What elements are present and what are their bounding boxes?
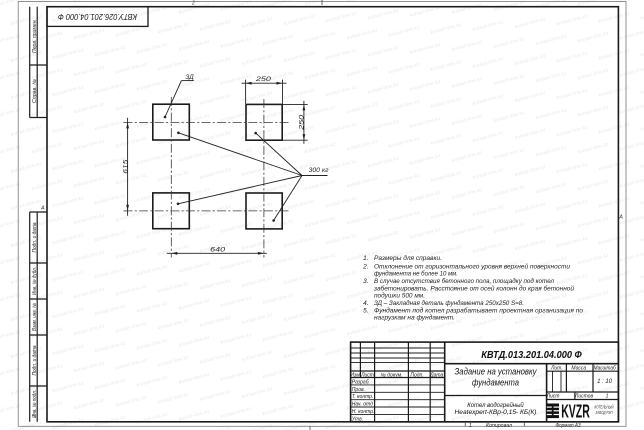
svg-text:kotlad-line.kz: kotlad-line.kz [577, 289, 610, 303]
svg-text:kotlad-line.kz: kotlad-line.kz [157, 391, 190, 405]
svg-text:kotlad-line.kz: kotlad-line.kz [535, 144, 568, 158]
svg-text:kotlad-line.kz: kotlad-line.kz [10, 124, 43, 138]
svg-text:kotlad-line.kz: kotlad-line.kz [577, 215, 610, 229]
svg-text:kotlad-line.kz: kotlad-line.kz [430, 170, 463, 184]
svg-text:kotlad-line.kz: kotlad-line.kz [0, 312, 1, 326]
svg-text:Подп. и дата: Подп. и дата [32, 345, 38, 375]
svg-text:kotlad-line.kz: kotlad-line.kz [304, 400, 337, 414]
svg-text:kotlad-line.kz: kotlad-line.kz [409, 79, 442, 93]
svg-text:kotlad-line.kz: kotlad-line.kz [346, 323, 379, 337]
svg-text:Изм: Изм [350, 372, 360, 378]
svg-text:kotlad-line.kz: kotlad-line.kz [346, 0, 379, 5]
svg-text:kotlad-line.kz: kotlad-line.kz [640, 267, 644, 281]
svg-text:kotlad-line.kz: kotlad-line.kz [640, 45, 644, 59]
svg-text:kotlad-line.kz: kotlad-line.kz [220, 295, 253, 309]
svg-text:kotlad-line.kz: kotlad-line.kz [94, 192, 127, 206]
svg-text:kotlad-line.kz: kotlad-line.kz [199, 389, 232, 403]
svg-text:5.: 5. [363, 307, 369, 314]
svg-text:kotlad-line.kz: kotlad-line.kz [640, 341, 644, 355]
svg-text:фундамента не более 10 мм.: фундамента не более 10 мм. [374, 270, 458, 278]
svg-text:kotlad-line.kz: kotlad-line.kz [178, 39, 211, 53]
svg-text:kotlad-line.kz: kotlad-line.kz [409, 153, 442, 167]
svg-text:kotlad-line.kz: kotlad-line.kz [472, 167, 505, 181]
svg-text:kotlad-line.kz: kotlad-line.kz [556, 235, 589, 249]
svg-text:kotlad-line.kz: kotlad-line.kz [514, 238, 547, 252]
svg-text:kotlad-line.kz: kotlad-line.kz [94, 81, 127, 95]
svg-text:kotlad-line.kz: kotlad-line.kz [52, 232, 85, 246]
svg-text:kotlad-line.kz: kotlad-line.kz [10, 420, 43, 430]
svg-text:kotlad-line.kz: kotlad-line.kz [0, 329, 22, 343]
svg-text:kotlad-line.kz: kotlad-line.kz [157, 354, 190, 368]
svg-text:kotlad-line.kz: kotlad-line.kz [472, 204, 505, 218]
svg-text:kotlad-line.kz: kotlad-line.kz [367, 44, 400, 58]
svg-text:kotlad-line.kz: kotlad-line.kz [52, 343, 85, 357]
svg-text:kotlad-line.kz: kotlad-line.kz [262, 403, 295, 417]
svg-text:kotlad-line.kz: kotlad-line.kz [73, 175, 106, 189]
svg-text:A: A [40, 206, 45, 212]
svg-text:kotlad-line.kz: kotlad-line.kz [241, 164, 274, 178]
svg-text:kotlad-line.kz: kotlad-line.kz [325, 306, 358, 320]
svg-text:kotlad-line.kz: kotlad-line.kz [94, 377, 127, 391]
svg-text:kotlad-line.kz: kotlad-line.kz [157, 21, 190, 35]
svg-text:kotlad-line.kz: kotlad-line.kz [325, 195, 358, 209]
svg-text:kotlad-line.kz: kotlad-line.kz [409, 116, 442, 130]
svg-text:kotlad-line.kz: kotlad-line.kz [241, 312, 274, 326]
svg-text:kotlad-line.kz: kotlad-line.kz [388, 173, 421, 187]
svg-text:kotlad-line.kz: kotlad-line.kz [283, 235, 316, 249]
svg-text:kotlad-line.kz: kotlad-line.kz [136, 41, 169, 55]
svg-text:1 : 10: 1 : 10 [597, 379, 613, 385]
svg-text:КОТЕЛЬНЫЙ: КОТЕЛЬНЫЙ [595, 405, 615, 410]
svg-text:kotlad-line.kz: kotlad-line.kz [283, 346, 316, 360]
svg-text:kotlad-line.kz: kotlad-line.kz [178, 76, 211, 90]
svg-text:kotlad-line.kz: kotlad-line.kz [451, 113, 484, 127]
svg-text:КВТУ.026.201.04.000 Ф: КВТУ.026.201.04.000 Ф [57, 12, 137, 21]
svg-text:kotlad-line.kz: kotlad-line.kz [304, 252, 337, 266]
svg-text:Масса: Масса [571, 365, 586, 371]
svg-text:kotlad-line.kz: kotlad-line.kz [0, 181, 22, 195]
svg-text:kotlad-line.kz: kotlad-line.kz [346, 138, 379, 152]
svg-text:kotlad-line.kz: kotlad-line.kz [220, 369, 253, 383]
svg-text:kotlad-line.kz: kotlad-line.kz [0, 16, 1, 30]
svg-text:kotlad-line.kz: kotlad-line.kz [325, 232, 358, 246]
svg-text:kotlad-line.kz: kotlad-line.kz [115, 172, 148, 186]
svg-text:kotlad-line.kz: kotlad-line.kz [304, 363, 337, 377]
svg-text:ЗД – Закладная деталь фундамен: ЗД – Закладная деталь фундамента 250х250… [374, 299, 524, 307]
svg-text:kotlad-line.kz: kotlad-line.kz [514, 16, 547, 30]
svg-text:kotlad-line.kz: kotlad-line.kz [556, 272, 589, 286]
svg-text:kotlad-line.kz: kotlad-line.kz [52, 47, 85, 61]
svg-text:kotlad-line.kz: kotlad-line.kz [304, 178, 337, 192]
svg-text:kotlad-line.kz: kotlad-line.kz [388, 136, 421, 150]
svg-text:kotlad-line.kz: kotlad-line.kz [0, 238, 1, 252]
svg-text:kotlad-line.kz: kotlad-line.kz [367, 118, 400, 132]
svg-text:1.: 1. [363, 255, 369, 262]
svg-text:kotlad-line.kz: kotlad-line.kz [472, 315, 505, 329]
svg-text:Взам. инв. №: Взам. инв. № [32, 302, 38, 331]
svg-text:kotlad-line.kz: kotlad-line.kz [241, 275, 274, 289]
svg-text:kotlad-line.kz: kotlad-line.kz [556, 161, 589, 175]
svg-text:kotlad-line.kz: kotlad-line.kz [73, 286, 106, 300]
svg-text:kotlad-line.kz: kotlad-line.kz [346, 27, 379, 41]
svg-text:250: 250 [255, 76, 272, 83]
svg-text:kotlad-line.kz: kotlad-line.kz [52, 306, 85, 320]
svg-text:kotlad-line.kz: kotlad-line.kz [115, 283, 148, 297]
svg-text:kotlad-line.kz: kotlad-line.kz [136, 300, 169, 314]
svg-text:kotlad-line.kz: kotlad-line.kz [52, 84, 85, 98]
svg-text:kotlad-line.kz: kotlad-line.kz [325, 10, 358, 24]
svg-text:kotlad-line.kz: kotlad-line.kz [325, 158, 358, 172]
svg-text:kotlad-line.kz: kotlad-line.kz [367, 7, 400, 21]
svg-text:kotlad-line.kz: kotlad-line.kz [325, 343, 358, 357]
svg-text:kotlad-line.kz: kotlad-line.kz [346, 64, 379, 78]
svg-text:kotlad-line.kz: kotlad-line.kz [0, 144, 22, 158]
svg-text:kotlad-line.kz: kotlad-line.kz [0, 70, 22, 84]
svg-text:kotlad-line.kz: kotlad-line.kz [220, 36, 253, 50]
svg-text:kotlad-line.kz: kotlad-line.kz [535, 70, 568, 84]
svg-text:kotlad-line.kz: kotlad-line.kz [304, 30, 337, 44]
svg-text:kotlad-line.kz: kotlad-line.kz [283, 50, 316, 64]
svg-text:подушки 500 мм.: подушки 500 мм. [374, 292, 425, 300]
svg-text:kotlad-line.kz: kotlad-line.kz [94, 266, 127, 280]
svg-text:kotlad-line.kz: kotlad-line.kz [178, 298, 211, 312]
svg-text:kotlad-line.kz: kotlad-line.kz [94, 44, 127, 58]
svg-text:kotlad-line.kz: kotlad-line.kz [199, 315, 232, 329]
svg-text:kotlad-line.kz: kotlad-line.kz [136, 374, 169, 388]
svg-text:kotlad-line.kz: kotlad-line.kz [115, 357, 148, 371]
svg-text:kotlad-line.kz: kotlad-line.kz [451, 187, 484, 201]
svg-text:kotlad-line.kz: kotlad-line.kz [10, 272, 43, 286]
svg-text:kotlad-line.kz: kotlad-line.kz [10, 198, 43, 212]
svg-text:kotlad-line.kz: kotlad-line.kz [0, 275, 1, 289]
svg-text:Фундамент под котел разрабатыв: Фундамент под котел разрабатывает проект… [374, 306, 583, 314]
svg-text:kotlad-line.kz: kotlad-line.kz [388, 321, 421, 335]
svg-text:kotlad-line.kz: kotlad-line.kz [388, 25, 421, 39]
svg-text:kotlad-line.kz: kotlad-line.kz [73, 360, 106, 374]
svg-text:kotlad-line.kz: kotlad-line.kz [136, 263, 169, 277]
svg-text:kotlad-line.kz: kotlad-line.kz [262, 329, 295, 343]
svg-text:kotlad-line.kz: kotlad-line.kz [619, 0, 644, 5]
svg-text:Подп. и дата: Подп. и дата [32, 222, 38, 252]
svg-text:забетонировать. Расстояние от: забетонировать. Расстояние от осей колон… [373, 284, 574, 292]
svg-text:kotlad-line.kz: kotlad-line.kz [325, 84, 358, 98]
svg-text:kotlad-line.kz: kotlad-line.kz [199, 167, 232, 181]
svg-text:kotlad-line.kz: kotlad-line.kz [535, 33, 568, 47]
svg-text:kotlad-line.kz: kotlad-line.kz [136, 78, 169, 92]
svg-text:kotlad-line.kz: kotlad-line.kz [451, 76, 484, 90]
svg-text:kotlad-line.kz: kotlad-line.kz [115, 61, 148, 75]
svg-text:kotlad-line.kz: kotlad-line.kz [325, 269, 358, 283]
svg-text:kotlad-line.kz: kotlad-line.kz [10, 161, 43, 175]
svg-text:kotlad-line.kz: kotlad-line.kz [619, 361, 644, 375]
svg-text:kotlad-line.kz: kotlad-line.kz [346, 175, 379, 189]
svg-text:Лист: Лист [546, 394, 560, 400]
svg-text:KVZR: KVZR [561, 400, 590, 421]
svg-text:kotlad-line.kz: kotlad-line.kz [115, 135, 148, 149]
svg-text:kotlad-line.kz: kotlad-line.kz [409, 42, 442, 56]
svg-text:kotlad-line.kz: kotlad-line.kz [472, 130, 505, 144]
svg-text:kotlad-line.kz: kotlad-line.kz [136, 337, 169, 351]
svg-text:Копировал: Копировал [486, 423, 512, 429]
svg-text:kotlad-line.kz: kotlad-line.kz [430, 59, 463, 73]
svg-text:kotlad-line.kz: kotlad-line.kz [640, 304, 644, 318]
svg-text:615: 615 [122, 159, 129, 173]
svg-text:kotlad-line.kz: kotlad-line.kz [640, 378, 644, 392]
svg-text:kotlad-line.kz: kotlad-line.kz [73, 249, 106, 263]
svg-text:нагрузкам на фундамент.: нагрузкам на фундамент. [374, 313, 455, 321]
svg-text:kotlad-line.kz: kotlad-line.kz [52, 269, 85, 283]
svg-text:250: 250 [299, 114, 306, 131]
svg-text:kotlad-line.kz: kotlad-line.kz [388, 210, 421, 224]
svg-text:kotlad-line.kz: kotlad-line.kz [535, 181, 568, 195]
svg-text:kotlad-line.kz: kotlad-line.kz [10, 50, 43, 64]
svg-text:kotlad-line.kz: kotlad-line.kz [619, 65, 644, 79]
svg-text:kotlad-line.kz: kotlad-line.kz [556, 198, 589, 212]
svg-text:kotlad-line.kz: kotlad-line.kz [472, 19, 505, 33]
svg-text:Лит.: Лит. [550, 365, 563, 371]
svg-text:kotlad-line.kz: kotlad-line.kz [52, 380, 85, 394]
svg-text:kotlad-line.kz: kotlad-line.kz [199, 56, 232, 70]
svg-text:kotlad-line.kz: kotlad-line.kz [0, 164, 1, 178]
svg-text:kotlad-line.kz: kotlad-line.kz [52, 158, 85, 172]
svg-text:kotlad-line.kz: kotlad-line.kz [262, 33, 295, 47]
svg-text:kotlad-line.kz: kotlad-line.kz [73, 323, 106, 337]
svg-text:kotlad-line.kz: kotlad-line.kz [220, 406, 253, 420]
svg-text:kotlad-line.kz: kotlad-line.kz [535, 329, 568, 343]
svg-text:kotlad-line.kz: kotlad-line.kz [619, 176, 644, 190]
svg-text:kotlad-line.kz: kotlad-line.kz [262, 218, 295, 232]
svg-text:kotlad-line.kz: kotlad-line.kz [241, 349, 274, 363]
svg-text:kotlad-line.kz: kotlad-line.kz [493, 36, 526, 50]
svg-text:kotlad-line.kz: kotlad-line.kz [52, 195, 85, 209]
svg-text:kotlad-line.kz: kotlad-line.kz [262, 144, 295, 158]
svg-text:kotlad-line.kz: kotlad-line.kz [430, 133, 463, 147]
svg-text:kotlad-line.kz: kotlad-line.kz [304, 104, 337, 118]
svg-text:фундамента: фундамента [472, 378, 519, 388]
svg-text:kotlad-line.kz: kotlad-line.kz [0, 255, 22, 269]
svg-text:kotlad-line.kz: kotlad-line.kz [73, 64, 106, 78]
svg-text:kotlad-line.kz: kotlad-line.kz [0, 107, 22, 121]
svg-text:kotlad-line.kz: kotlad-line.kz [10, 346, 43, 360]
svg-text:kotlad-line.kz: kotlad-line.kz [115, 246, 148, 260]
svg-text:kotlad-line.kz: kotlad-line.kz [73, 101, 106, 115]
svg-text:Листов: Листов [574, 394, 594, 400]
svg-text:kotlad-line.kz: kotlad-line.kz [577, 104, 610, 118]
svg-text:kotlad-line.kz: kotlad-line.kz [304, 326, 337, 340]
svg-text:kotlad-line.kz: kotlad-line.kz [514, 201, 547, 215]
svg-text:kotlad-line.kz: kotlad-line.kz [157, 243, 190, 257]
svg-text:2: 2 [191, 1, 195, 7]
svg-text:640: 640 [210, 246, 226, 253]
svg-text:kotlad-line.kz: kotlad-line.kz [157, 280, 190, 294]
svg-text:kotlad-line.kz: kotlad-line.kz [241, 16, 274, 30]
svg-text:kotlad-line.kz: kotlad-line.kz [52, 417, 85, 430]
svg-text:kotlad-line.kz: kotlad-line.kz [157, 58, 190, 72]
svg-text:kotlad-line.kz: kotlad-line.kz [451, 150, 484, 164]
svg-text:kotlad-line.kz: kotlad-line.kz [0, 386, 1, 400]
svg-text:kotlad-line.kz: kotlad-line.kz [325, 47, 358, 61]
svg-text:kotlad-line.kz: kotlad-line.kz [514, 127, 547, 141]
svg-text:ЗАВОД РЭП: ЗАВОД РЭП [596, 410, 614, 415]
svg-text:kotlad-line.kz: kotlad-line.kz [220, 221, 253, 235]
svg-text:kotlad-line.kz: kotlad-line.kz [619, 398, 644, 412]
svg-text:kotlad-line.kz: kotlad-line.kz [367, 229, 400, 243]
svg-text:1: 1 [469, 423, 472, 429]
svg-text:kotlad-line.kz: kotlad-line.kz [409, 190, 442, 204]
svg-text:kotlad-line.kz: kotlad-line.kz [178, 113, 211, 127]
svg-text:kotlad-line.kz: kotlad-line.kz [430, 392, 463, 406]
svg-text:kotlad-line.kz: kotlad-line.kz [0, 366, 22, 380]
svg-text:kotlad-line.kz: kotlad-line.kz [388, 62, 421, 76]
svg-text:kotlad-line.kz: kotlad-line.kz [283, 87, 316, 101]
svg-text:kotlad-line.kz: kotlad-line.kz [283, 13, 316, 27]
svg-text:kotlad-line.kz: kotlad-line.kz [0, 403, 22, 417]
svg-text:kotlad-line.kz: kotlad-line.kz [619, 28, 644, 42]
svg-text:kotlad-line.kz: kotlad-line.kz [535, 292, 568, 306]
svg-text:kotlad-line.kz: kotlad-line.kz [556, 87, 589, 101]
svg-text:Heatexpert-КВр-0,15- КБ(К): Heatexpert-КВр-0,15- КБ(К) [455, 409, 537, 416]
svg-text:kotlad-line.kz: kotlad-line.kz [157, 206, 190, 220]
svg-text:kotlad-line.kz: kotlad-line.kz [472, 241, 505, 255]
svg-text:kotlad-line.kz: kotlad-line.kz [262, 107, 295, 121]
svg-text:3.: 3. [363, 278, 369, 285]
svg-text:kotlad-line.kz: kotlad-line.kz [283, 309, 316, 323]
svg-text:kotlad-line.kz: kotlad-line.kz [94, 340, 127, 354]
svg-text:kotlad-line.kz: kotlad-line.kz [514, 90, 547, 104]
svg-text:kotlad-line.kz: kotlad-line.kz [220, 258, 253, 272]
svg-text:kotlad-line.kz: kotlad-line.kz [178, 150, 211, 164]
svg-text:kotlad-line.kz: kotlad-line.kz [73, 0, 106, 4]
svg-text:kotlad-line.kz: kotlad-line.kz [94, 118, 127, 132]
svg-text:kotlad-line.kz: kotlad-line.kz [0, 218, 22, 232]
svg-text:kotlad-line.kz: kotlad-line.kz [577, 67, 610, 81]
svg-text:Инв. № дубл.: Инв. № дубл. [32, 267, 38, 295]
svg-text:Задание на установку: Задание на установку [455, 366, 537, 376]
svg-text:kotlad-line.kz: kotlad-line.kz [283, 272, 316, 286]
svg-text:kotlad-line.kz: kotlad-line.kz [619, 139, 644, 153]
svg-text:Масштаб: Масштаб [594, 365, 616, 371]
svg-text:kotlad-line.kz: kotlad-line.kz [0, 90, 1, 104]
svg-text:kotlad-line.kz: kotlad-line.kz [514, 53, 547, 67]
svg-text:kotlad-line.kz: kotlad-line.kz [640, 156, 644, 170]
svg-text:kotlad-line.kz: kotlad-line.kz [367, 192, 400, 206]
svg-text:kotlad-line.kz: kotlad-line.kz [346, 212, 379, 226]
svg-text:kotlad-line.kz: kotlad-line.kz [73, 138, 106, 152]
svg-text:kotlad-line.kz: kotlad-line.kz [619, 250, 644, 264]
svg-text:kotlad-line.kz: kotlad-line.kz [0, 33, 22, 47]
svg-text:kotlad-line.kz: kotlad-line.kz [178, 335, 211, 349]
svg-text:Дата: Дата [429, 372, 443, 378]
svg-text:Утв.: Утв. [352, 416, 363, 422]
svg-text:kotlad-line.kz: kotlad-line.kz [388, 99, 421, 113]
svg-text:В случае отсутствия бетонного: В случае отсутствия бетонного пола, площ… [374, 277, 554, 285]
svg-text:kotlad-line.kz: kotlad-line.kz [556, 124, 589, 138]
svg-text:kotlad-line.kz: kotlad-line.kz [577, 252, 610, 266]
svg-text:kotlad-line.kz: kotlad-line.kz [178, 261, 211, 275]
svg-text:kotlad-line.kz: kotlad-line.kz [367, 81, 400, 95]
svg-text:kotlad-line.kz: kotlad-line.kz [136, 152, 169, 166]
svg-text:kotlad-line.kz: kotlad-line.kz [199, 93, 232, 107]
svg-text:Формат А3: Формат А3 [556, 423, 581, 429]
svg-text:Н. контр.: Н. контр. [352, 409, 375, 415]
svg-text:kotlad-line.kz: kotlad-line.kz [577, 30, 610, 44]
svg-text:kotlad-line.kz: kotlad-line.kz [514, 164, 547, 178]
svg-text:Подп.: Подп. [410, 372, 423, 378]
svg-text:Нач. отд: Нач. отд [352, 402, 373, 408]
svg-text:kotlad-line.kz: kotlad-line.kz [640, 119, 644, 133]
svg-text:kotlad-line.kz: kotlad-line.kz [178, 409, 211, 423]
svg-text:kotlad-line.kz: kotlad-line.kz [283, 383, 316, 397]
svg-text:kotlad-line.kz: kotlad-line.kz [409, 412, 442, 426]
svg-text:kotlad-line.kz: kotlad-line.kz [262, 366, 295, 380]
svg-text:kotlad-line.kz: kotlad-line.kz [451, 39, 484, 53]
svg-text:kotlad-line.kz: kotlad-line.kz [619, 102, 644, 116]
svg-text:Размеры для справки.: Размеры для справки. [374, 254, 442, 262]
svg-text:kotlad-line.kz: kotlad-line.kz [115, 394, 148, 408]
svg-text:kotlad-line.kz: kotlad-line.kz [178, 372, 211, 386]
svg-text:300 кг: 300 кг [309, 167, 330, 174]
svg-text:kotlad-line.kz: kotlad-line.kz [409, 227, 442, 241]
svg-text:Инв. № подл.: Инв. № подл. [32, 390, 38, 418]
svg-text:kotlad-line.kz: kotlad-line.kz [136, 411, 169, 425]
svg-text:2.: 2. [362, 263, 369, 270]
svg-text:kotlad-line.kz: kotlad-line.kz [493, 332, 526, 346]
svg-text:kotlad-line.kz: kotlad-line.kz [430, 22, 463, 36]
svg-text:kotlad-line.kz: kotlad-line.kz [640, 82, 644, 96]
svg-text:kotlad-line.kz: kotlad-line.kz [199, 352, 232, 366]
svg-text:kotlad-line.kz: kotlad-line.kz [10, 235, 43, 249]
svg-text:ЗД: ЗД [185, 74, 194, 81]
svg-text:kotlad-line.kz: kotlad-line.kz [157, 169, 190, 183]
svg-text:kotlad-line.kz: kotlad-line.kz [0, 127, 1, 141]
svg-text:kotlad-line.kz: kotlad-line.kz [430, 207, 463, 221]
svg-text:kotlad-line.kz: kotlad-line.kz [220, 110, 253, 124]
svg-text:kotlad-line.kz: kotlad-line.kz [115, 320, 148, 334]
svg-text:kotlad-line.kz: kotlad-line.kz [178, 224, 211, 238]
svg-text:kotlad-line.kz: kotlad-line.kz [262, 292, 295, 306]
svg-text:kotlad-line.kz: kotlad-line.kz [220, 332, 253, 346]
svg-text:kotlad-line.kz: kotlad-line.kz [241, 238, 274, 252]
svg-text:kotlad-line.kz: kotlad-line.kz [493, 73, 526, 87]
svg-text:kotlad-line.kz: kotlad-line.kz [94, 303, 127, 317]
svg-text:kotlad-line.kz: kotlad-line.kz [262, 255, 295, 269]
svg-text:kotlad-line.kz: kotlad-line.kz [325, 121, 358, 135]
svg-text:kotlad-line.kz: kotlad-line.kz [73, 212, 106, 226]
svg-text:kotlad-line.kz: kotlad-line.kz [556, 13, 589, 27]
svg-text:kotlad-line.kz: kotlad-line.kz [94, 229, 127, 243]
svg-text:kotlad-line.kz: kotlad-line.kz [493, 147, 526, 161]
svg-text:Котел водогрейный: Котел водогрейный [467, 401, 524, 409]
svg-text:kotlad-line.kz: kotlad-line.kz [472, 56, 505, 70]
svg-text:kotlad-line.kz: kotlad-line.kz [73, 397, 106, 411]
svg-text:kotlad-line.kz: kotlad-line.kz [241, 53, 274, 67]
svg-text:kotlad-line.kz: kotlad-line.kz [0, 53, 1, 67]
svg-text:kotlad-line.kz: kotlad-line.kz [493, 110, 526, 124]
svg-text:kotlad-line.kz: kotlad-line.kz [304, 67, 337, 81]
svg-text:№ докум.: № докум. [380, 372, 402, 378]
svg-text:kotlad-line.kz: kotlad-line.kz [10, 383, 43, 397]
svg-text:Лист: Лист [360, 372, 374, 378]
svg-text:kotlad-line.kz: kotlad-line.kz [451, 2, 484, 16]
svg-text:kotlad-line.kz: kotlad-line.kz [640, 8, 644, 22]
svg-text:kotlad-line.kz: kotlad-line.kz [430, 96, 463, 110]
svg-text:Перв. примен.: Перв. примен. [32, 19, 38, 53]
svg-text:kotlad-line.kz: kotlad-line.kz [493, 184, 526, 198]
svg-text:kotlad-line.kz: kotlad-line.kz [0, 292, 22, 306]
svg-text:kotlad-line.kz: kotlad-line.kz [115, 209, 148, 223]
svg-text:kotlad-line.kz: kotlad-line.kz [241, 386, 274, 400]
svg-text:Справ. №: Справ. № [32, 78, 38, 103]
